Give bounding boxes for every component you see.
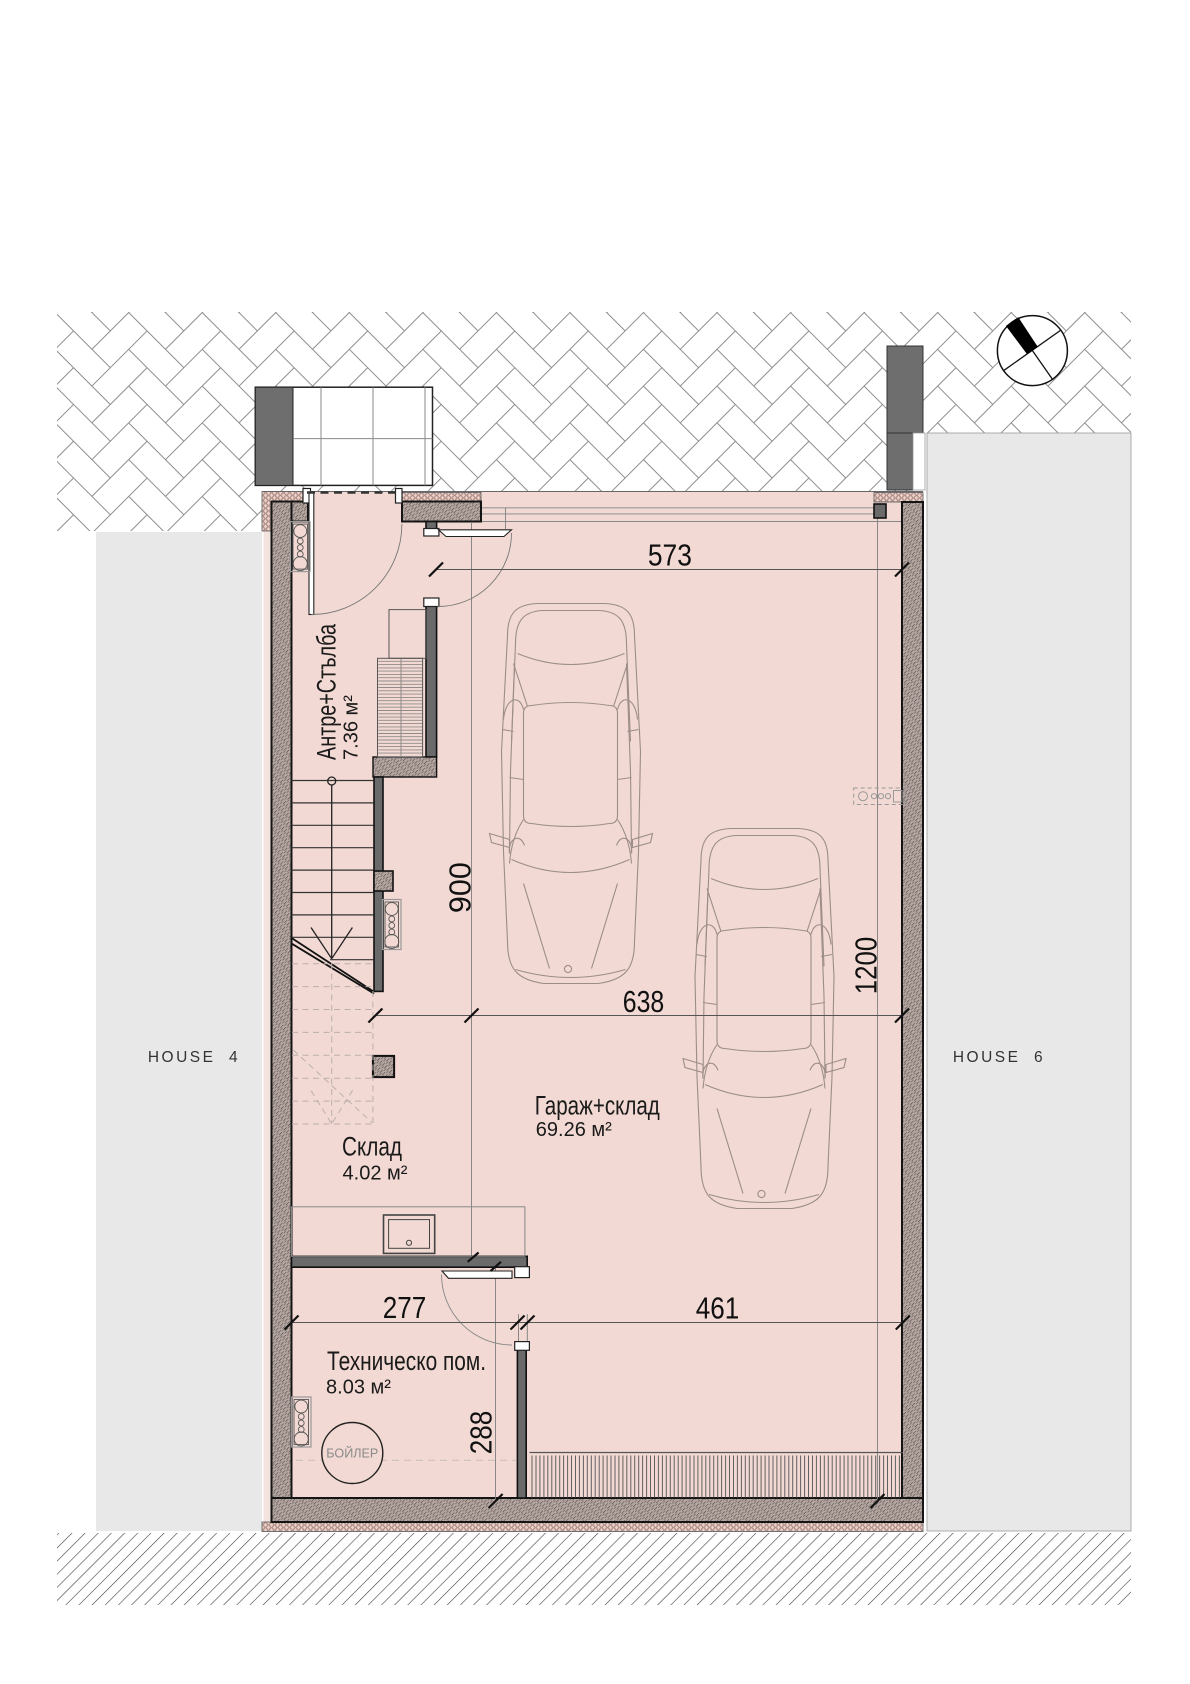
svg-text:8.03 м²: 8.03 м² (326, 1377, 391, 1399)
svg-text:Антре+Стълба: Антре+Стълба (312, 624, 342, 760)
svg-text:Техническо пом.: Техническо пом. (327, 1346, 486, 1376)
svg-text:461: 461 (696, 1292, 740, 1326)
svg-text:4.02 м²: 4.02 м² (343, 1163, 408, 1185)
svg-text:69.26 м²: 69.26 м² (536, 1119, 612, 1141)
svg-text:573: 573 (648, 539, 692, 573)
svg-text:HOUSE 4: HOUSE 4 (148, 1049, 240, 1066)
svg-text:Склад: Склад (342, 1132, 402, 1162)
svg-text:Гараж+склад: Гараж+склад (535, 1090, 660, 1120)
svg-text:277: 277 (383, 1291, 427, 1325)
svg-text:638: 638 (623, 985, 665, 1019)
svg-text:7.36 м²: 7.36 м² (341, 695, 363, 760)
svg-text:HOUSE 6: HOUSE 6 (953, 1049, 1045, 1066)
svg-text:900: 900 (444, 862, 478, 913)
svg-text:БОЙЛЕР: БОЙЛЕР (326, 1446, 378, 1461)
svg-text:1200: 1200 (850, 937, 884, 995)
svg-text:288: 288 (465, 1411, 499, 1455)
